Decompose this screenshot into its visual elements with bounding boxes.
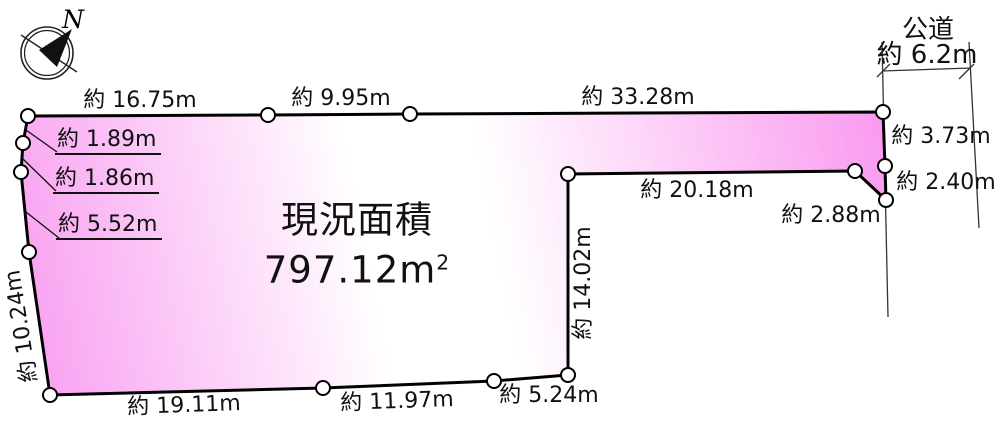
boundary-point bbox=[876, 105, 890, 119]
boundary-point bbox=[21, 109, 35, 123]
dim-top-33-28: 約 33.28m bbox=[581, 86, 694, 110]
dim-right-3-73: 約 3.73m bbox=[891, 125, 990, 149]
land-plot-diagram: N 約 16.75m 約 9.95m 約 33.28m 約 3.73m 約 2.… bbox=[0, 0, 1000, 435]
road-name-label: 公道 bbox=[902, 18, 954, 42]
boundary-point bbox=[561, 368, 575, 382]
road-width-label: 約 6.2m bbox=[877, 43, 978, 67]
boundary-point bbox=[14, 165, 28, 179]
boundary-point bbox=[43, 388, 57, 402]
dim-top-16-75: 約 16.75m bbox=[83, 89, 196, 113]
boundary-point bbox=[261, 108, 275, 122]
dim-top-9-95: 約 9.95m bbox=[291, 87, 390, 111]
boundary-point bbox=[316, 381, 330, 395]
dim-right-2-88: 約 2.88m bbox=[781, 204, 880, 228]
dim-bottom-19-11: 約 19.11m bbox=[127, 392, 241, 420]
compass-north-letter: N bbox=[61, 5, 85, 34]
area-title: 現況面積 bbox=[264, 198, 450, 241]
boundary-point bbox=[561, 167, 575, 181]
dim-left-1-86: 約 1.86m bbox=[53, 167, 159, 194]
boundary-point bbox=[22, 245, 36, 259]
dim-notch-20-18: 約 20.18m bbox=[640, 179, 753, 203]
dim-notch-14-02: 約 14.02m bbox=[572, 226, 596, 339]
boundary-point bbox=[848, 164, 862, 178]
dim-bottom-5-24: 約 5.24m bbox=[499, 384, 598, 408]
dim-left-5-52: 約 5.52m bbox=[56, 213, 162, 240]
boundary-point bbox=[879, 193, 893, 207]
boundary-point bbox=[403, 107, 417, 121]
boundary-point bbox=[16, 136, 30, 150]
dim-right-2-40: 約 2.40m bbox=[896, 171, 995, 195]
area-annotation: 現況面積 797.12m2 bbox=[264, 198, 450, 291]
compass-rose: N bbox=[21, 5, 85, 79]
dim-left-1-89: 約 1.89m bbox=[55, 128, 161, 155]
dim-bottom-11-97: 約 11.97m bbox=[340, 388, 454, 416]
area-unit-exponent: 2 bbox=[436, 250, 450, 274]
north-needle-icon bbox=[39, 29, 72, 67]
area-value: 797.12m2 bbox=[264, 241, 450, 291]
boundary-point bbox=[878, 159, 892, 173]
